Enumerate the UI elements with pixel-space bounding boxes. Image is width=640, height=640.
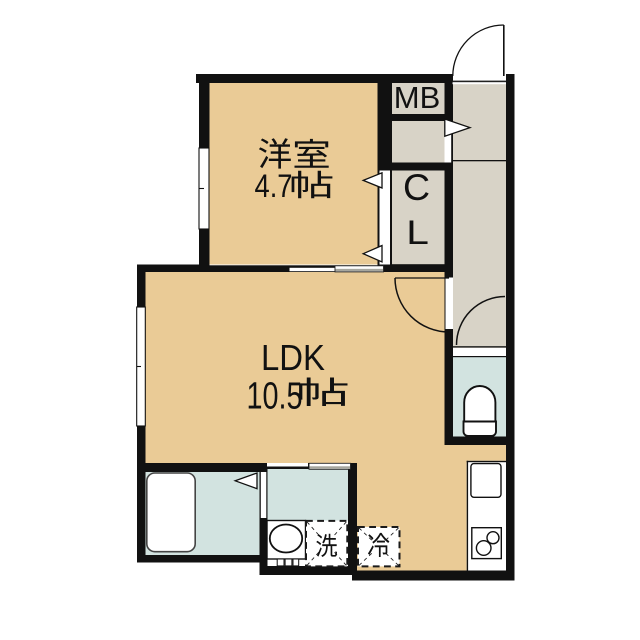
svg-text:MB: MB	[394, 80, 441, 115]
svg-text:4.7: 4.7	[255, 167, 293, 204]
svg-text:LDK: LDK	[261, 337, 325, 378]
svg-text:C: C	[403, 166, 430, 208]
svg-text:10.5: 10.5	[247, 374, 303, 416]
svg-text:L: L	[406, 213, 429, 251]
